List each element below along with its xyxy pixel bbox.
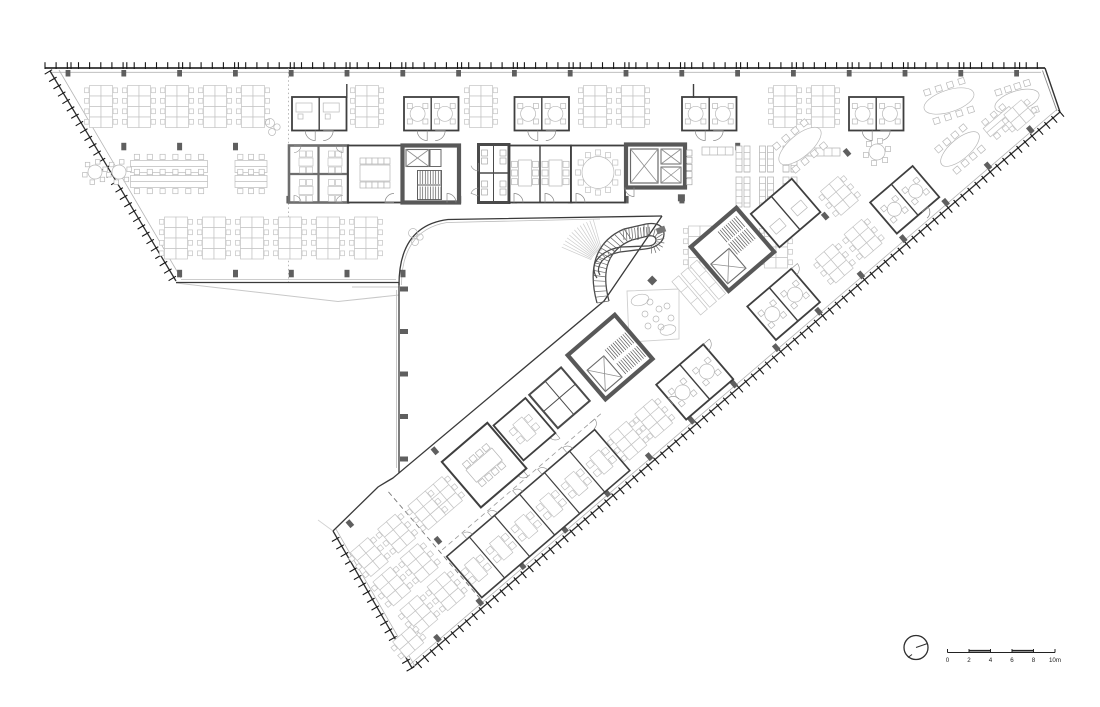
svg-text:10m: 10m xyxy=(1049,657,1061,664)
svg-text:8: 8 xyxy=(1032,657,1036,664)
svg-text:2: 2 xyxy=(967,657,971,664)
svg-text:4: 4 xyxy=(989,657,993,664)
svg-text:0: 0 xyxy=(946,657,950,664)
svg-text:6: 6 xyxy=(1010,657,1014,664)
